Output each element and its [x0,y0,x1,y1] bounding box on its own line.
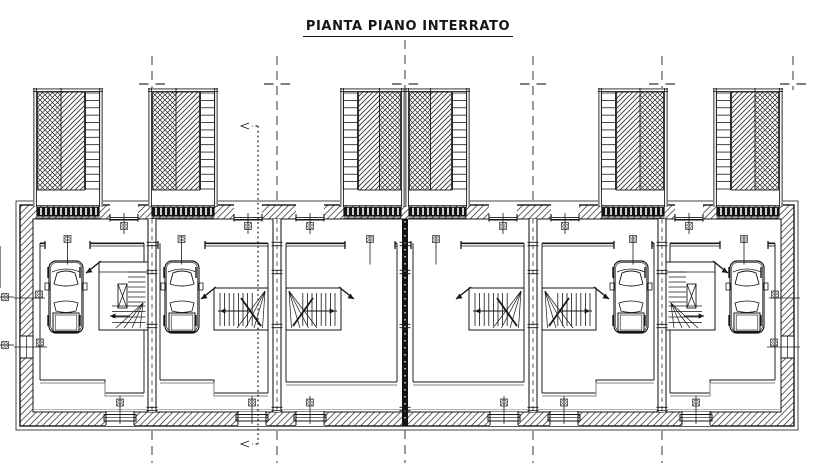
section-arrow [238,438,252,450]
stair-switchback [666,262,715,330]
party-wall [529,219,537,412]
ramp-slab [617,88,664,190]
ramp-slab [153,88,200,190]
ramp-slab [359,88,401,190]
stair-winder [469,288,524,330]
ramp-6 [713,88,783,218]
party-wall [658,219,666,412]
drain-grate [343,205,401,218]
drain-grate [408,205,466,218]
ramp-3 [340,88,405,218]
floor-plan-sheet: PIANTA PIANO INTERRATO [0,0,816,476]
floor-plan-drawing [0,0,816,476]
ramp-1 [33,88,103,218]
ramp-slab [38,88,85,190]
section-arrow [238,120,252,132]
party-wall [273,219,281,412]
ramp-slab [732,88,779,190]
ramp-slab [410,88,452,190]
stair-switchback [99,262,148,330]
party-wall [148,219,156,412]
stair-winder [286,288,341,330]
drain-grate [601,205,664,218]
ramp-5 [598,88,668,218]
drain-grate [716,205,779,218]
ramp-2 [148,88,218,218]
stair-winder [214,288,268,330]
ramp-4 [405,88,470,218]
drain-grate [151,205,214,218]
outside-markers [0,294,14,349]
drain-grate [36,205,99,218]
stair-winder [542,288,596,330]
